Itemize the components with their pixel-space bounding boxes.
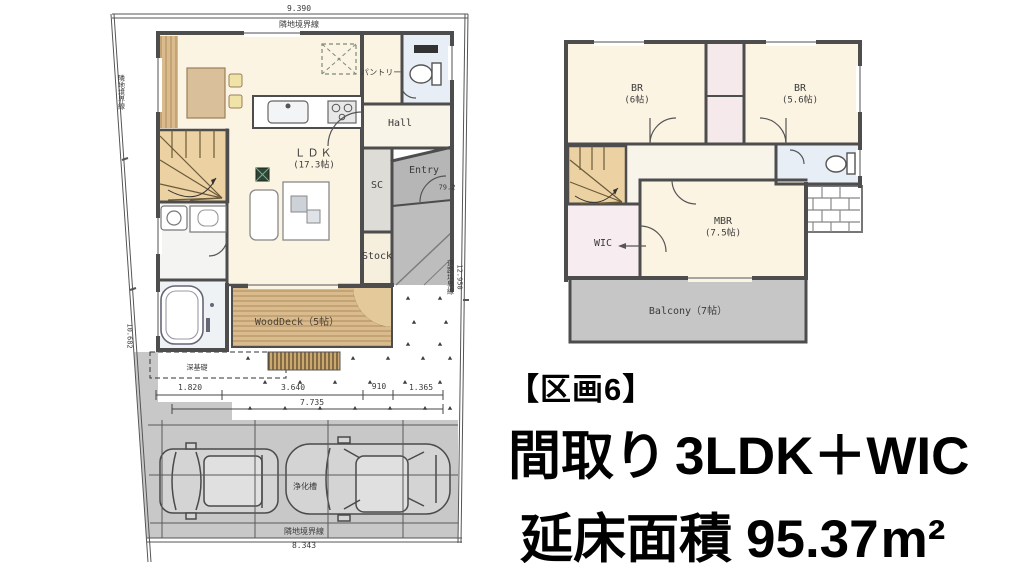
- room-label-mbr: MBR: [714, 217, 732, 227]
- room-label-br2-size: (5.6帖): [782, 97, 818, 106]
- caption-area-value: 95.37: [746, 510, 879, 569]
- dim-right-value: 12.950: [456, 264, 463, 289]
- boundary-left-label: 隣地境界線: [118, 75, 125, 110]
- room-label-br2: BR: [794, 84, 806, 94]
- room-label-br1-size: (6帖): [624, 97, 649, 106]
- dim-left-offset: 10.682: [126, 323, 133, 348]
- room-label-br1: BR: [631, 84, 643, 94]
- car-sedan: [286, 437, 450, 521]
- room-label-balcony: Balcony（7帖）: [649, 307, 727, 317]
- boundary-bottom-label: 隣地境界線: [284, 528, 324, 536]
- dim-top-value: 9.390: [287, 5, 311, 13]
- label-septic-tank: 浄化槽: [293, 483, 317, 491]
- room-label-wooddeck: WoodDeck（5帖）: [255, 318, 339, 328]
- room-label-sc: SC: [371, 181, 383, 191]
- room-label-hall: Hall: [388, 119, 412, 129]
- caption-layout-value: 3LDK＋WIC: [675, 427, 969, 486]
- caption-lot: 【区画6】: [508, 364, 969, 409]
- dim-7735: 7.735: [300, 399, 324, 407]
- caption-area: 延床面積95.37m²: [508, 497, 969, 573]
- room-label-mbr-size: (7.5帖): [705, 230, 741, 239]
- dim-bottom-value: 8.343: [292, 542, 316, 550]
- room-label-wic: WIC: [594, 239, 612, 249]
- room-label-ldk: ＬＤＫ: [295, 148, 334, 159]
- caption-block: 【区画6】 間取り3LDK＋WIC 延床面積95.37m²: [508, 364, 969, 573]
- dim-3640: 3.640: [281, 384, 305, 392]
- deep-foundation-outline: [150, 352, 286, 378]
- dim-1365: 1.365: [409, 384, 433, 392]
- caption-area-unit: m²: [881, 510, 946, 569]
- room-label-ldk-size: (17.3帖): [293, 162, 335, 171]
- caption-layout-label: 間取り: [508, 427, 667, 486]
- room-label-stock: Stock: [362, 252, 392, 262]
- boundary-right-label: 道路境界線: [447, 260, 454, 295]
- car-van: [160, 443, 278, 519]
- caption-layout: 間取り3LDK＋WIC: [508, 414, 969, 490]
- dim-right-offset: 79.2: [439, 185, 456, 192]
- floor2-rooms: [568, 44, 862, 342]
- caption-area-label: 延床面積: [520, 510, 732, 569]
- boundary-top-label: 隣地境界線: [279, 21, 319, 29]
- label-deep-foundation: 深基礎: [187, 365, 208, 372]
- room-label-pantry: パントリー: [361, 69, 401, 77]
- floorplan-slide: 9.390 隣地境界線 パントリー Hall Entry SC Stock ＬＤ…: [0, 0, 1024, 576]
- dim-910: 910: [372, 383, 386, 391]
- room-label-entry: Entry: [409, 166, 439, 176]
- dim-1820: 1.820: [178, 384, 202, 392]
